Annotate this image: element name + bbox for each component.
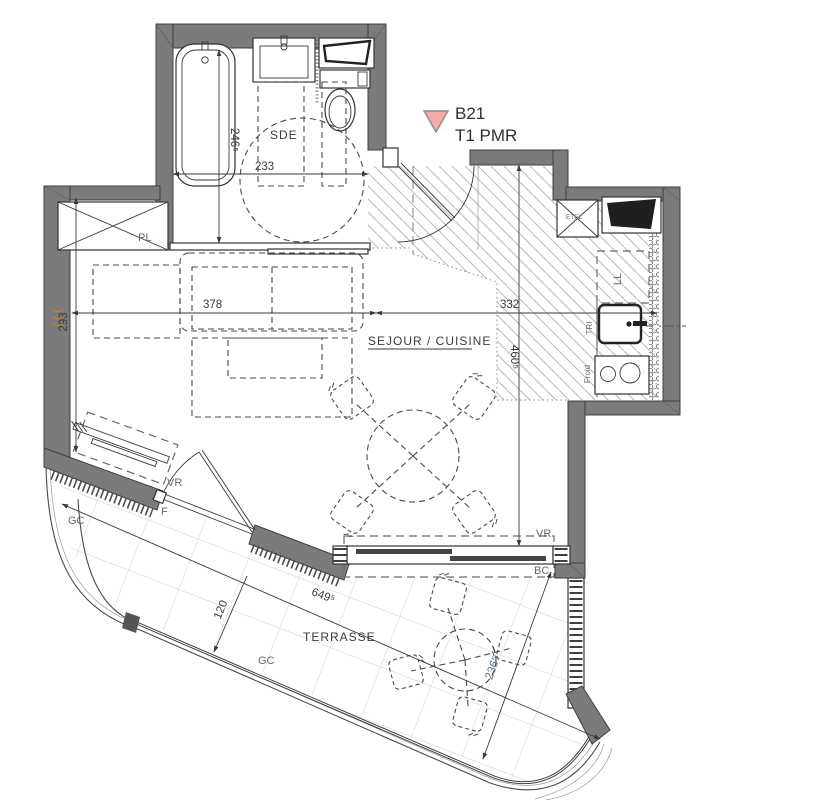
unit-marker-triangle <box>424 111 448 132</box>
room-label-terrace: TERRASSE <box>303 630 376 644</box>
dim-living-depth-east: 460⁵ <box>508 345 520 369</box>
bathtub <box>176 44 235 186</box>
cooktop <box>595 356 649 394</box>
pmr-turning-circle <box>240 118 364 242</box>
fridge-label: Froid <box>583 365 592 383</box>
dim-living-depth-west: 293 <box>58 312 70 331</box>
railing-south-label: GC <box>258 655 275 667</box>
wall-kitchen-east <box>663 187 680 415</box>
washer-label: LL <box>612 273 624 285</box>
coffee-table <box>228 338 322 378</box>
top-cabinet-board <box>607 199 656 229</box>
vanity <box>253 38 315 82</box>
bathroom-shelf-board <box>324 41 370 64</box>
unit-type: T1 PMR <box>455 126 517 145</box>
bathroom: SDE 233 246⁵ <box>173 36 374 243</box>
faucet-icon <box>626 321 631 326</box>
toilet-tank <box>320 70 370 88</box>
furniture-side-unit <box>93 265 180 338</box>
dining-table-set <box>325 369 501 540</box>
unit-title: B21 T1 PMR <box>424 104 517 145</box>
tri-label: TRI <box>585 322 594 335</box>
floor-plan: 649⁵ 120 236⁵ TERRASSE GC GC <box>0 0 819 800</box>
bay-panel-right <box>450 556 546 561</box>
dim-living-width-east: 332 <box>500 299 519 311</box>
dim-bathroom-width: 233 <box>255 161 274 173</box>
entry-door-jamb <box>383 148 398 167</box>
dim-living-width-west: 378 <box>203 299 222 311</box>
french-window-label: F <box>161 506 168 518</box>
wall-se-corner <box>555 563 585 578</box>
railing-west-label: GC <box>68 515 85 527</box>
wall-entry-north <box>470 150 556 165</box>
french-window-swing <box>162 452 199 496</box>
shutter-south-label: VR <box>536 528 551 540</box>
sofa <box>180 253 363 331</box>
closet-pl-label: PL <box>138 232 151 244</box>
wall-living-east <box>568 401 585 565</box>
shutter-west-label: VR <box>167 477 182 489</box>
utility-closet-label: ETEL <box>566 214 583 221</box>
bay-window-label: BC <box>534 565 549 577</box>
insulation-strip <box>649 228 659 400</box>
room-label-living: SEJOUR / CUISINE <box>368 334 491 348</box>
room-label-bathroom: SDE <box>270 128 298 142</box>
dim-bathroom-depth: 246⁵ <box>228 128 240 152</box>
bay-panel-left <box>356 549 452 554</box>
unit-id: B21 <box>455 104 485 123</box>
